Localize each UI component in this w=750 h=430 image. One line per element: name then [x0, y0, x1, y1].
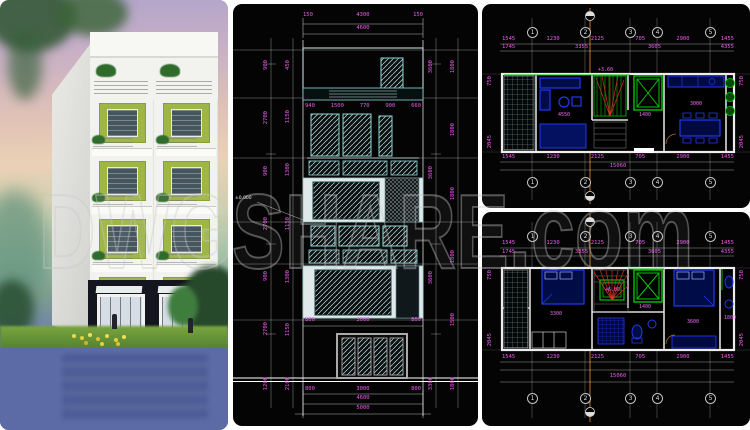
floor3-windows: [307, 114, 419, 158]
cad-elevation-panel: ±0.000 1504300150 4600 9401500770900660 …: [233, 4, 478, 426]
planter-ledge: [726, 79, 735, 116]
grid-bubble: 1: [527, 393, 538, 404]
dim-text: 1230: [546, 155, 559, 161]
cad-floor-plan-1-panel: 1 2 3 4 5 1 2 3 4 5 15451230212570529001…: [482, 4, 750, 208]
bed-1: [542, 270, 584, 304]
kitchen-counter: [668, 76, 724, 87]
dimension-row: 1745335536054355: [502, 45, 734, 51]
balcony-railing: [94, 81, 148, 96]
dim-text: 4355: [721, 45, 734, 51]
room-tag: 4550: [558, 113, 570, 118]
dim-text: 3000: [356, 318, 369, 324]
dim-text: 2900: [676, 355, 689, 361]
dim-text: 2900: [676, 241, 689, 247]
dimension-column: 180018001800180015001800: [448, 60, 460, 390]
grid-bubble: 2: [580, 393, 591, 404]
dimension-row: 15451230212570529001455: [502, 37, 734, 43]
door-threshold: [634, 148, 654, 153]
dim-text: 150: [303, 13, 313, 19]
dim-text: 2045: [488, 333, 494, 346]
dim-text: 1455: [721, 37, 734, 43]
dimension-row: 9401500770900660: [305, 104, 421, 110]
top-floor-balcony: [90, 58, 218, 100]
dim-text: 1800: [451, 60, 457, 73]
floor1-window: [303, 266, 423, 318]
dimension-column: 450115013001150130011502100: [283, 60, 295, 390]
dimension-column: 3600360036003300: [426, 60, 438, 390]
dim-text: 4600: [356, 396, 369, 402]
spandrel-panels: [309, 161, 417, 175]
dim-text: 1200: [264, 377, 270, 390]
dim-text: 1500: [451, 313, 457, 326]
floor2-clerestory-windows: [311, 226, 407, 246]
floor2-wall: [303, 178, 423, 222]
dimension-column: 9002700900270090027001200: [261, 60, 273, 390]
dim-text: 705: [635, 155, 645, 161]
terrace-hatch: [504, 76, 534, 150]
dim-text: 2700: [264, 322, 270, 335]
dim-text: 705: [635, 355, 645, 361]
dim-text: 3600: [429, 166, 435, 179]
dim-text: 1800: [451, 250, 457, 263]
dimension-row: 1745335536054355: [502, 250, 734, 256]
dim-text: 1800: [451, 187, 457, 200]
dimension-row: 15451230212570529001455: [502, 241, 734, 247]
dim-text: 5000: [356, 406, 369, 412]
dim-text: 1545: [502, 241, 515, 247]
dimension-column: 7502045: [486, 76, 496, 148]
dim-text: 750: [740, 270, 746, 280]
dim-text: 1230: [546, 37, 559, 43]
dim-text: 2125: [591, 355, 604, 361]
dim-text: 4600: [356, 26, 369, 32]
balcony-railing: [156, 81, 212, 96]
dim-text: 1230: [546, 241, 559, 247]
dim-text: 2900: [676, 37, 689, 43]
grid-bubble: 5: [705, 177, 716, 188]
lift-tag: 1400: [639, 305, 651, 310]
dimension-row: 15060: [502, 164, 734, 170]
hanging-vine: [8, 30, 42, 100]
facade-unit: [90, 216, 154, 274]
dim-text: 3600: [429, 60, 435, 73]
dim-text: 15060: [610, 164, 627, 170]
dim-text: 800: [411, 318, 421, 324]
dim-text: 750: [488, 270, 494, 280]
cabinet-2: [672, 336, 716, 348]
dim-text: 2125: [591, 241, 604, 247]
dim-text: 705: [635, 241, 645, 247]
dim-text: 900: [264, 271, 270, 281]
person-figure: [112, 314, 117, 329]
room-tag: 1800: [724, 316, 736, 321]
building-reflection: [62, 354, 208, 420]
roof-access-door: [381, 58, 403, 92]
dim-text: 2125: [591, 155, 604, 161]
cabinet-block: [540, 124, 586, 148]
room-tag: 3000: [690, 102, 702, 107]
dimension-column: 7502045: [486, 270, 496, 346]
facade-unit: [154, 158, 218, 216]
dim-text: 2045: [488, 135, 494, 148]
dim-text: 1455: [721, 241, 734, 247]
dimension-row: 4600: [303, 396, 423, 402]
dim-text: 900: [385, 104, 395, 110]
dimension-column: 7502045: [738, 76, 748, 148]
dim-text: 900: [264, 60, 270, 70]
dim-text: 1150: [286, 110, 292, 123]
dim-text: 1230: [546, 355, 559, 361]
dim-text: 3605: [648, 45, 661, 51]
dim-text: 3355: [575, 250, 588, 256]
dim-text: 1300: [286, 163, 292, 176]
spandrel-panels-2: [309, 250, 417, 263]
grid-bubble: 5: [705, 393, 716, 404]
dim-text: 660: [411, 104, 421, 110]
dimension-row: 15451230212570529001455: [502, 355, 734, 361]
dimension-row: 5000: [303, 406, 423, 412]
grid-bubble: 4: [652, 393, 663, 404]
dimension-row: 8003000800: [305, 387, 421, 393]
cad-floor-plan-2-panel: 1 2 3 4 5 1 2 3 4 5 15451230212570529001…: [482, 212, 750, 426]
dim-text: 450: [286, 60, 292, 70]
dim-text: 1455: [721, 355, 734, 361]
dimension-row: 15451230212570529001455: [502, 155, 734, 161]
louver-band: [303, 88, 423, 100]
dim-text: 2700: [264, 217, 270, 230]
dim-text: 1150: [286, 217, 292, 230]
bed-2: [674, 270, 714, 306]
dim-text: 1745: [502, 45, 515, 51]
dim-text: 705: [635, 37, 645, 43]
dim-text: 800: [411, 387, 421, 393]
yellow-flowers: [72, 334, 76, 338]
dimension-row: 4600: [303, 26, 423, 32]
dim-text: 1745: [502, 250, 515, 256]
dim-text: 3600: [429, 271, 435, 284]
grid-bubble: 3: [625, 393, 636, 404]
grid-bubble: 4: [652, 177, 663, 188]
dim-text: 750: [488, 76, 494, 86]
building-side-wall: [52, 26, 92, 338]
dim-text: 1455: [721, 155, 734, 161]
dim-text: 1300: [286, 270, 292, 283]
balcony-hatch: [504, 270, 528, 348]
person-figure: [188, 318, 193, 333]
dim-text: 2045: [740, 135, 746, 148]
dim-text: 1800: [451, 377, 457, 390]
dim-text: 2100: [286, 377, 292, 390]
stair-tag: +3.60: [598, 68, 613, 73]
grid-bubble: 3: [625, 177, 636, 188]
dim-text: 1150: [286, 323, 292, 336]
tree: [168, 286, 198, 326]
roof-parapet: [90, 32, 218, 58]
grid-bubble: 1: [527, 177, 538, 188]
balcony-plant: [160, 64, 180, 77]
dim-text: 3355: [575, 45, 588, 51]
room-tag: 3600: [687, 320, 699, 325]
dim-text: 1500: [331, 104, 344, 110]
building-3d-render-panel: [0, 0, 228, 430]
lift-tag: 1400: [639, 113, 651, 118]
dimension-row: 1504300150: [303, 13, 423, 19]
facade-unit: [154, 100, 218, 158]
dim-text: 2045: [740, 333, 746, 346]
composite-image: ±0.000 1504300150 4600 9401500770900660 …: [0, 0, 750, 430]
dimension-row: 15060: [502, 374, 734, 380]
dim-text: 150: [413, 13, 423, 19]
dim-text: 4355: [721, 250, 734, 256]
dim-text: 1545: [502, 355, 515, 361]
dim-text: 1545: [502, 37, 515, 43]
dimension-column: 7502045: [738, 270, 748, 346]
door-awning: [96, 286, 143, 293]
roof-parapet-outline: [303, 48, 423, 92]
dim-text: 900: [264, 166, 270, 176]
ground-floor-door: [337, 334, 407, 378]
dim-text: 1545: [502, 155, 515, 161]
balcony-plant: [96, 64, 116, 77]
stair-tag: +6.80: [605, 288, 620, 293]
dim-text: 2700: [264, 111, 270, 124]
grid-bubble: 2: [580, 177, 591, 188]
dim-text: 3605: [648, 250, 661, 256]
dim-text: 770: [360, 104, 370, 110]
dim-text: 2900: [676, 155, 689, 161]
dim-text: 15060: [610, 374, 627, 380]
level-annotation: ±0.000: [235, 197, 252, 202]
room-tag: 3300: [550, 312, 562, 317]
dim-text: 1800: [451, 123, 457, 136]
dim-text: 940: [305, 104, 315, 110]
dim-text: 3300: [429, 377, 435, 390]
dim-text: 800: [305, 318, 315, 324]
dim-text: 4300: [356, 13, 369, 19]
dimension-row: 8003000800: [305, 318, 421, 324]
facade-unit: [90, 158, 154, 216]
dim-text: 3000: [356, 387, 369, 393]
dim-text: 2125: [591, 37, 604, 43]
dim-text: 800: [305, 387, 315, 393]
facade-unit: [90, 100, 154, 158]
dim-text: 750: [740, 76, 746, 86]
